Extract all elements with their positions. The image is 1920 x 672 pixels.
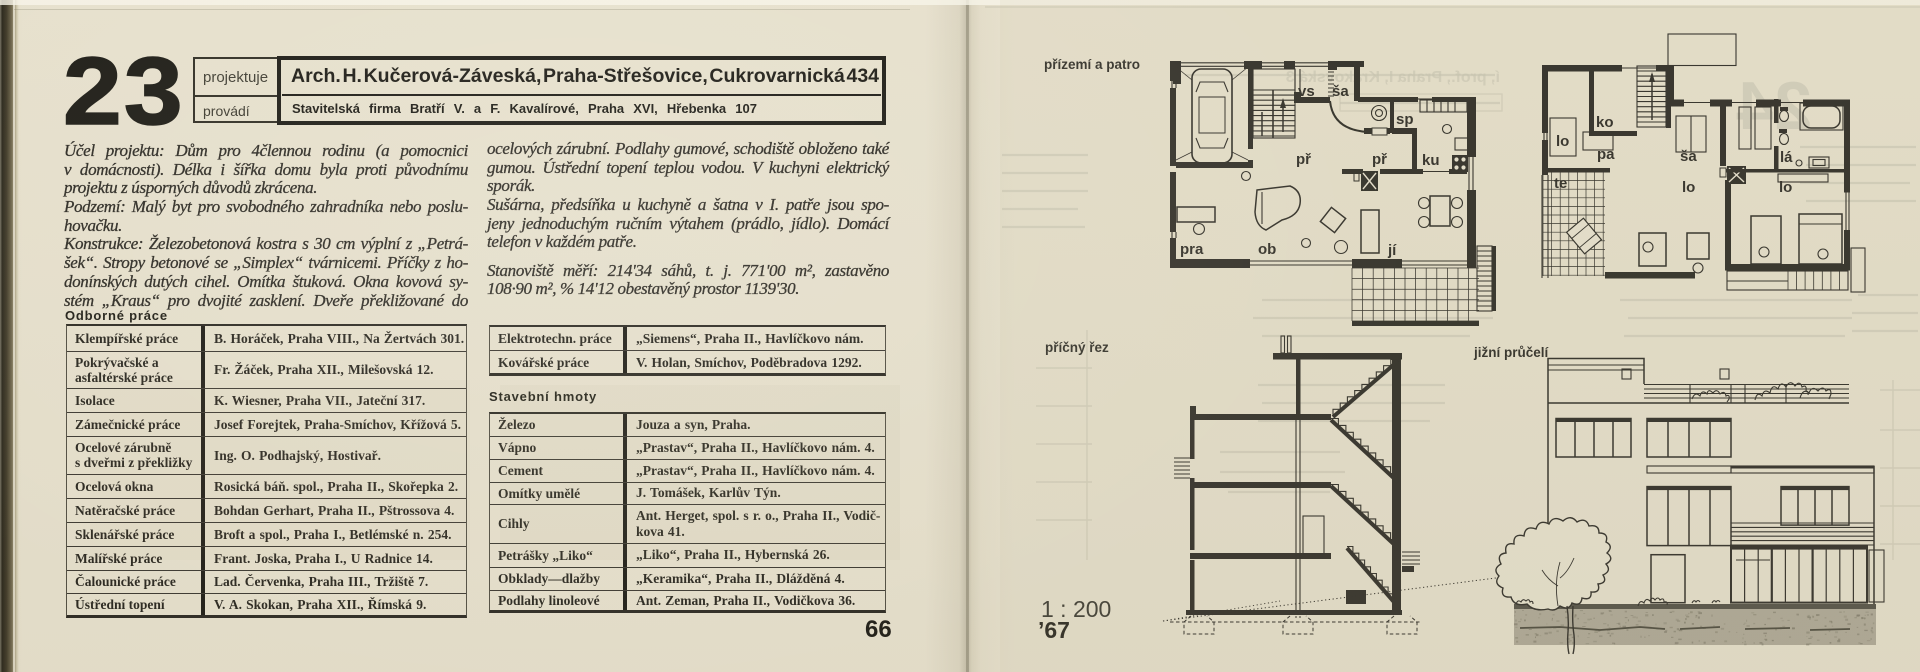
svg-text:př: př (1296, 151, 1311, 168)
svg-text:jižní průčelí: jižní průčelí (1473, 345, 1550, 360)
svg-text:příčný řez: příčný řez (1045, 340, 1109, 355)
svg-text:ku: ku (1422, 152, 1440, 169)
svg-text:pra: pra (1180, 241, 1204, 258)
svg-text:te: te (1554, 175, 1567, 192)
svg-text:ša: ša (1332, 83, 1349, 100)
svg-text:přízemí a patro: přízemí a patro (1044, 57, 1140, 72)
svg-text:jí: jí (1387, 242, 1397, 259)
svg-text:pa: pa (1597, 146, 1615, 163)
svg-text:lo: lo (1556, 133, 1569, 150)
svg-text:př: př (1372, 151, 1387, 168)
svg-text:lo: lo (1682, 179, 1695, 196)
svg-text:ob: ob (1258, 241, 1276, 258)
svg-text:ko: ko (1596, 114, 1614, 131)
svg-text:vs: vs (1298, 83, 1315, 100)
svg-text:í, prof., Praha I, Krakovská 3: í, prof., Praha I, Krakovská 3 (1286, 69, 1500, 86)
svg-text:ša: ša (1680, 148, 1697, 165)
svg-text:lo: lo (1779, 179, 1792, 196)
svg-text:sp: sp (1396, 111, 1414, 128)
svg-text:lá: lá (1780, 149, 1793, 166)
